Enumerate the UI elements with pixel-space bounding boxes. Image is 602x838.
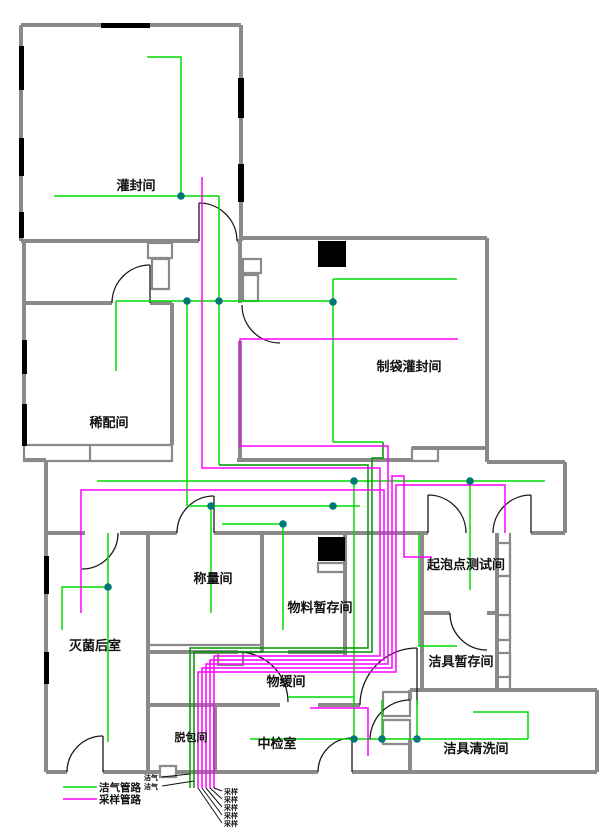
room-label-jiejuqingxi: 洁具清洗间 [443, 741, 508, 756]
room-label-miejunhoushi: 灭菌后室 [68, 638, 121, 653]
pipe-tap-labels: 洁气 洁气 采样 采样 采样 采样 采样 [144, 773, 238, 828]
room-label-xipeijian: 稀配间 [89, 415, 128, 430]
tap-label-left-1: 洁气 [144, 773, 158, 782]
room-label-zhongjianshi: 中检室 [257, 736, 296, 751]
room-label-wuhuanjian: 物缓间 [266, 674, 305, 689]
room-labels: 灌封间 制袋灌封间 稀配间 称量间 物料暂存间 灭菌后室 起泡点测试间 洁具暂存… [68, 178, 509, 756]
legend: 洁气管路 采样管路 [63, 781, 141, 806]
tap-label-right-4: 采样 [223, 811, 238, 820]
black-block-top [318, 241, 346, 267]
room-label-tuobaojian: 脱包间 [175, 730, 208, 744]
room-label-qipaodian: 起泡点测试间 [426, 557, 505, 572]
tap-label-right-2: 采样 [223, 795, 238, 804]
tap-label-right-1: 采样 [223, 787, 238, 796]
legend-sampling-label: 采样管路 [98, 793, 141, 806]
room-label-jiejuzancun: 洁具暂存间 [428, 654, 493, 669]
room-label-wuliao: 物料暂存间 [287, 600, 352, 615]
equipment-blocks [318, 241, 346, 572]
floor-plan-page: 灌封间 制袋灌封间 稀配间 称量间 物料暂存间 灭菌后室 起泡点测试间 洁具暂存… [0, 0, 602, 838]
floor-plan: 灌封间 制袋灌封间 稀配间 称量间 物料暂存间 灭菌后室 起泡点测试间 洁具暂存… [0, 0, 602, 838]
room-label-chengliangjian: 称量间 [193, 571, 232, 586]
tap-label-right-3: 采样 [223, 803, 238, 812]
room-label-guanfengjian: 灌封间 [116, 178, 155, 193]
black-block-center [318, 537, 345, 561]
tap-label-right-5: 采样 [223, 819, 238, 828]
legend-clean-gas-label: 洁气管路 [99, 781, 141, 794]
room-label-zhidai: 制袋灌封间 [376, 359, 441, 374]
tap-label-left-2: 洁气 [144, 782, 158, 791]
